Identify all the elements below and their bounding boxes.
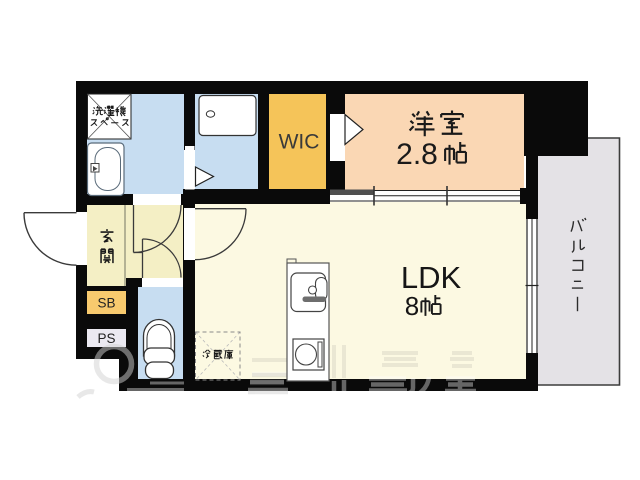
- svg-text:SB: SB: [97, 296, 115, 311]
- svg-text:PS: PS: [97, 331, 115, 346]
- svg-text:WIC: WIC: [279, 131, 320, 154]
- svg-text:LDK: LDK: [401, 260, 462, 295]
- svg-text:2.8: 2.8: [396, 138, 438, 171]
- svg-text:8: 8: [405, 291, 419, 321]
